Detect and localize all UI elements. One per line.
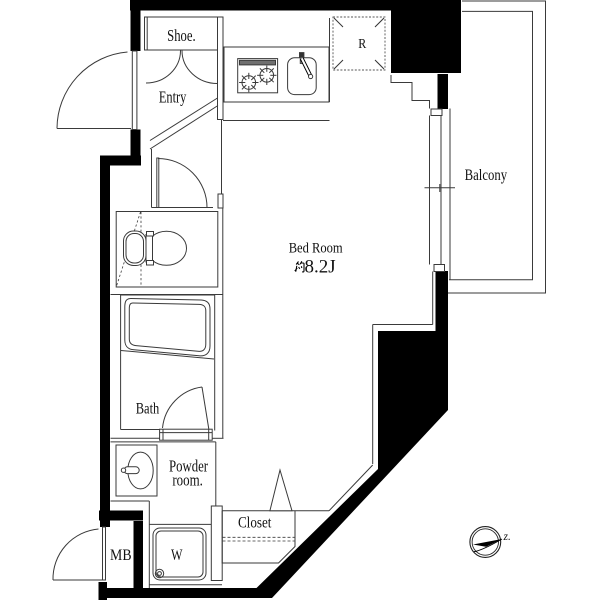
svg-text:z.: z. bbox=[503, 531, 511, 543]
svg-text:room.: room. bbox=[172, 471, 203, 490]
svg-text:Closet: Closet bbox=[238, 514, 272, 531]
svg-text:Balcony: Balcony bbox=[465, 167, 508, 184]
svg-text:Bath: Bath bbox=[136, 401, 160, 418]
svg-text:Bed Room: Bed Room bbox=[289, 241, 343, 257]
svg-text:MB: MB bbox=[110, 547, 132, 564]
svg-text:8.2J: 8.2J bbox=[305, 257, 336, 278]
svg-text:Entry: Entry bbox=[159, 88, 187, 107]
svg-text:W: W bbox=[171, 547, 183, 564]
svg-text:R: R bbox=[358, 37, 367, 52]
svg-text:Shoe.: Shoe. bbox=[167, 26, 196, 45]
